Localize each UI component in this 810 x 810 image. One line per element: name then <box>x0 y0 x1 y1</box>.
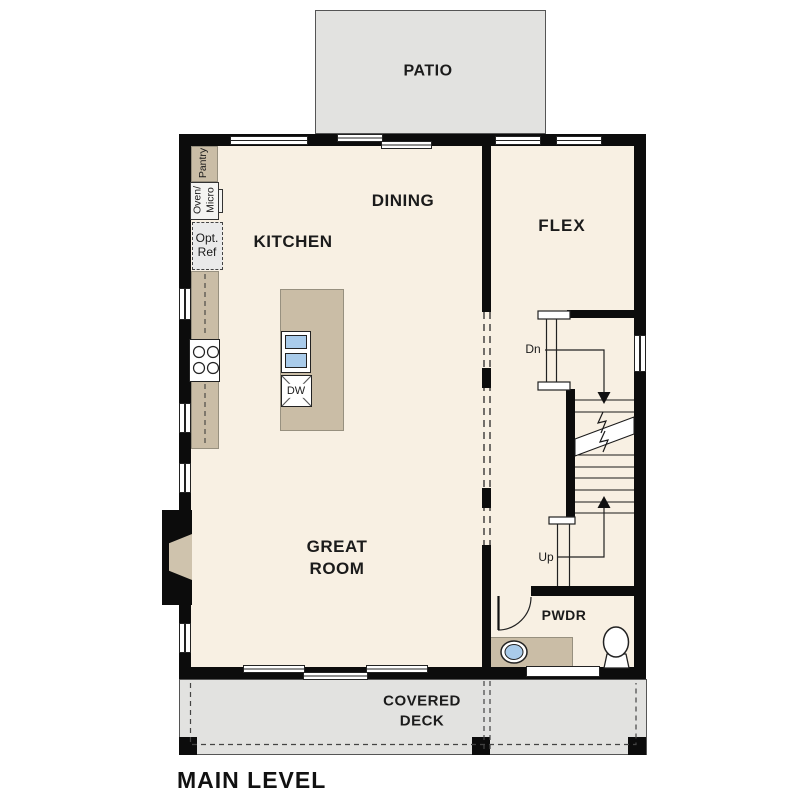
level-title: MAIN LEVEL <box>177 767 326 794</box>
pwdr-label: PWDR <box>542 606 587 624</box>
vanity-sink-basin <box>505 645 523 660</box>
great-room-label-line1: GREAT <box>307 536 368 558</box>
oven-micro-label: Oven/ Micro <box>191 186 216 214</box>
kitchen-label: KITCHEN <box>253 231 332 253</box>
covered-deck-label-line2: DECK <box>383 711 461 731</box>
patio-label: PATIO <box>403 62 452 83</box>
dining-label: DINING <box>372 190 435 212</box>
dishwasher-label: DW <box>286 384 306 398</box>
stairs-up-label: Up <box>538 550 553 566</box>
stairs-up-arrow <box>558 496 611 557</box>
covered-deck-label: COVERED DECK <box>383 692 461 731</box>
stairs-down-label: Dn <box>525 342 540 358</box>
opt-ref-label: Opt. Ref <box>196 232 219 260</box>
oven-label-line: Oven/ <box>191 186 204 214</box>
micro-label-line: Micro <box>204 186 217 214</box>
toilet-bowl <box>604 627 629 657</box>
floor-plan: PATIO DINING KITCHEN FLEX GREAT ROOM PWD… <box>0 0 810 810</box>
stair-treads <box>575 400 634 513</box>
opt-ref-label-line2: Ref <box>196 246 219 260</box>
dashed-wall-opening <box>484 312 490 545</box>
wall-post-2 <box>482 488 491 508</box>
covered-deck-label-line1: COVERED <box>383 692 461 712</box>
cooktop-burners <box>194 347 219 374</box>
linework-overlay <box>0 0 810 810</box>
flex-label: FLEX <box>538 215 585 237</box>
wall-post-1 <box>482 368 491 388</box>
pwdr-door-arc <box>498 597 531 630</box>
great-room-label-line2: ROOM <box>307 558 368 580</box>
opt-ref-label-line1: Opt. <box>196 232 219 246</box>
stairs-down-arrow <box>545 350 611 404</box>
pantry-label: Pantry <box>197 148 211 178</box>
stair-break-band <box>575 417 634 456</box>
great-room-label: GREAT ROOM <box>307 536 368 580</box>
